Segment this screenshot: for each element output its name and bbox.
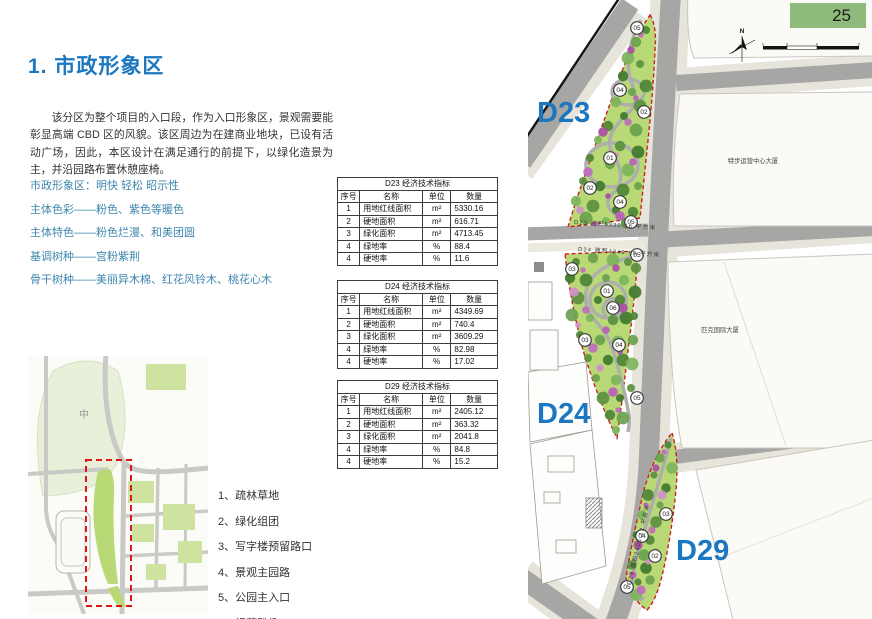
building-label-tebu: 特步运营中心大厦 xyxy=(728,156,779,165)
table-cell: 4 xyxy=(338,253,360,266)
flower-dot xyxy=(624,118,632,126)
table-cell: 1 xyxy=(338,406,360,419)
table-cell: 硬地率 xyxy=(360,456,423,469)
tree-dot xyxy=(627,384,635,392)
flower-dot xyxy=(657,490,666,499)
table-cell: 2 xyxy=(338,318,360,331)
tree-dot xyxy=(640,562,652,574)
table-cell: 用地红线面积 xyxy=(360,406,423,419)
flower-dot xyxy=(661,449,666,454)
tree-dot xyxy=(630,312,638,320)
table-cell: 82.98 xyxy=(451,343,498,356)
tree-dot xyxy=(619,275,629,285)
tree-dot xyxy=(628,88,636,96)
table-cell: 4713.45 xyxy=(451,228,498,241)
tree-dot xyxy=(645,575,654,584)
table-cell: 4 xyxy=(338,456,360,469)
flower-dot xyxy=(648,526,655,533)
locator-center-label: 中 xyxy=(79,408,89,421)
plan-marker: 02 xyxy=(649,550,662,563)
tree-dot xyxy=(608,315,618,325)
tree-dot xyxy=(597,392,610,405)
tree-dot xyxy=(566,309,579,322)
table-title: D23 经济技术指标 xyxy=(338,178,498,191)
table-cell: % xyxy=(423,456,451,469)
building-label-pike: 匹克国际大厦 xyxy=(701,325,739,334)
locator-map: 中 xyxy=(28,356,208,614)
table-cell: 11.6 xyxy=(451,253,498,266)
plan-marker: 04 xyxy=(613,339,626,352)
svg-text:04: 04 xyxy=(615,342,623,349)
table-header-cell: 名称 xyxy=(360,393,423,406)
plan-marker: 03 xyxy=(566,263,579,276)
table-cell: m² xyxy=(423,228,451,241)
flower-dot xyxy=(569,287,579,297)
tree-dot xyxy=(636,60,644,68)
table-header-cell: 数量 xyxy=(451,393,498,406)
tree-dot xyxy=(634,578,641,585)
tree-dot xyxy=(611,375,621,385)
flower-dot xyxy=(583,167,593,177)
table-cell: 硬地面积 xyxy=(360,215,423,228)
table-cell: m² xyxy=(423,406,451,419)
tree-dot xyxy=(605,410,615,420)
table-cell: 88.4 xyxy=(451,240,498,253)
svg-text:03: 03 xyxy=(568,266,576,273)
table-cell: 3 xyxy=(338,228,360,241)
tree-dot xyxy=(617,184,630,197)
table-cell: 硬地面积 xyxy=(360,418,423,431)
tree-dot xyxy=(629,286,642,299)
table-header-cell: 序号 xyxy=(338,293,360,306)
plan-marker: 06 xyxy=(607,302,620,315)
svg-text:05: 05 xyxy=(633,395,641,402)
svg-text:02: 02 xyxy=(640,109,648,116)
table-cell: m² xyxy=(423,215,451,228)
tree-dot xyxy=(656,501,663,508)
svg-text:01: 01 xyxy=(606,155,614,162)
table-cell: 4 xyxy=(338,356,360,369)
table-cell: m² xyxy=(423,418,451,431)
flower-dot xyxy=(605,193,611,199)
table-cell: 1 xyxy=(338,203,360,216)
tree-dot xyxy=(655,453,664,462)
tree-dot xyxy=(592,374,600,382)
svg-text:04: 04 xyxy=(616,199,624,206)
flower-dot xyxy=(636,585,645,594)
table-title: D29 经济技术指标 xyxy=(338,381,498,394)
table-cell: 4 xyxy=(338,443,360,456)
flower-dot xyxy=(580,267,586,273)
tree-dot xyxy=(584,354,592,362)
table-cell: 绿地率 xyxy=(360,240,423,253)
svg-text:02: 02 xyxy=(586,185,594,192)
table-cell: 4 xyxy=(338,343,360,356)
plan-marker: 02 xyxy=(584,182,597,195)
table-title: D24 经济技术指标 xyxy=(338,281,498,294)
table-cell: 84.8 xyxy=(451,443,498,456)
tree-dot xyxy=(603,355,613,365)
flower-dot xyxy=(615,211,625,221)
table-header-cell: 单位 xyxy=(423,293,451,306)
zone-label-d23: D23 xyxy=(537,97,590,129)
svg-text:06: 06 xyxy=(609,305,617,312)
table-cell: 硬地率 xyxy=(360,356,423,369)
tree-dot xyxy=(571,196,581,206)
table-cell: % xyxy=(423,343,451,356)
svg-text:03: 03 xyxy=(662,511,670,518)
table-cell: 15.2 xyxy=(451,456,498,469)
tree-dot xyxy=(617,412,630,425)
table-cell: 3 xyxy=(338,431,360,444)
tree-dot xyxy=(594,136,602,144)
tree-dot xyxy=(586,154,594,162)
tree-dot xyxy=(588,253,598,263)
flower-dot xyxy=(576,206,584,214)
tree-dot xyxy=(630,124,643,137)
svg-text:02: 02 xyxy=(651,553,659,560)
table-cell: % xyxy=(423,240,451,253)
tree-dot xyxy=(612,426,620,434)
tree-dot xyxy=(626,358,639,371)
table-cell: 绿地率 xyxy=(360,343,423,356)
tree-dot xyxy=(622,52,635,65)
table-cell: 硬地率 xyxy=(360,253,423,266)
legend-item: 3、写字楼预留路口 xyxy=(218,538,312,554)
plan-marker: 01 xyxy=(601,285,614,298)
table-header-cell: 数量 xyxy=(451,190,498,203)
flower-dot xyxy=(575,322,581,328)
legend-item: 4、景观主园路 xyxy=(218,564,312,580)
flower-dot xyxy=(633,95,639,101)
plan-marker: 03 xyxy=(579,334,592,347)
table-header-cell: 单位 xyxy=(423,393,451,406)
plan-marker: 04 xyxy=(614,196,627,209)
tree-dot xyxy=(611,97,621,107)
legend-item: 5、公园主入口 xyxy=(218,589,312,605)
tree-dot xyxy=(586,314,594,322)
plan-marker: 01 xyxy=(604,152,617,165)
table-header-cell: 序号 xyxy=(338,393,360,406)
svg-text:N: N xyxy=(740,28,745,35)
table-cell: m² xyxy=(423,331,451,344)
table-cell: m² xyxy=(423,318,451,331)
table-cell: 3 xyxy=(338,331,360,344)
legend-item: 6、绿荫雅趣 xyxy=(218,615,312,619)
svg-text:05: 05 xyxy=(633,25,641,32)
tree-dot xyxy=(624,258,632,266)
spec-table-d23: D23 经济技术指标序号名称单位数量1用地红线面积m²5330.162硬地面积m… xyxy=(337,177,498,266)
spec-table-d29: D29 经济技术指标序号名称单位数量1用地红线面积m²2405.122硬地面积m… xyxy=(337,380,498,469)
tree-dot xyxy=(595,335,605,345)
tree-dot xyxy=(650,516,662,528)
feature-line: 骨干树种——美丽异木棉、红花风铃木、桃花心木 xyxy=(30,271,272,287)
tree-dot xyxy=(628,335,638,345)
table-cell: 硬地面积 xyxy=(360,318,423,331)
tree-dot xyxy=(587,200,600,213)
table-cell: 2 xyxy=(338,215,360,228)
legend-list: 1、疏林草地 2、绿化组团 3、写字楼预留路口 4、景观主园路 5、公园主入口 … xyxy=(218,487,312,619)
page-title: 1. 市政形象区 xyxy=(28,50,164,80)
table-header-cell: 名称 xyxy=(360,190,423,203)
site-plan: 05 04 02 01 02 04 05 05 03 01 06 03 04 0… xyxy=(528,0,872,619)
flower-dot xyxy=(615,407,621,413)
table-cell: m² xyxy=(423,203,451,216)
table-cell: 绿化面积 xyxy=(360,228,423,241)
flower-dot xyxy=(629,158,637,166)
feature-line: 主体特色——粉色烂漫、和美团圆 xyxy=(30,224,272,240)
plan-marker: 05 xyxy=(631,22,644,35)
plan-marker: 05 xyxy=(631,392,644,405)
tree-dot xyxy=(580,274,593,287)
table-cell: 616.71 xyxy=(451,215,498,228)
table-cell: 740.4 xyxy=(451,318,498,331)
zone-label-d29: D29 xyxy=(676,535,729,567)
table-cell: 3609.29 xyxy=(451,331,498,344)
table-header-cell: 序号 xyxy=(338,190,360,203)
table-cell: 用地红线面积 xyxy=(360,306,423,319)
tree-dot xyxy=(620,312,633,325)
tree-dot xyxy=(615,141,625,151)
tree-dot xyxy=(618,71,628,81)
tree-dot xyxy=(631,37,641,47)
zone-label-d24: D24 xyxy=(537,398,590,430)
table-cell: 2041.8 xyxy=(451,431,498,444)
table-cell: 绿化面积 xyxy=(360,331,423,344)
table-cell: 绿地率 xyxy=(360,443,423,456)
table-cell: m² xyxy=(423,306,451,319)
plan-marker: 03 xyxy=(660,508,673,521)
tree-dot xyxy=(640,80,653,93)
document-page: 1. 市政形象区 该分区为整个项目的入口段，作为入口形象区，景观需要能彰显高端 … xyxy=(0,0,872,619)
table-cell: 1 xyxy=(338,306,360,319)
table-cell: m² xyxy=(423,431,451,444)
tree-dot xyxy=(650,471,657,478)
table-cell: 2405.12 xyxy=(451,406,498,419)
table-cell: 用地红线面积 xyxy=(360,203,423,216)
flower-dot xyxy=(627,46,635,54)
legend-item: 1、疏林草地 xyxy=(218,487,312,503)
spec-table-d24: D24 经济技术指标序号名称单位数量1用地红线面积m²4349.692硬地面积m… xyxy=(337,280,498,369)
intro-paragraph: 该分区为整个项目的入口段，作为入口形象区，景观需要能彰显高端 CBD 区的风貌。… xyxy=(30,110,333,180)
page-number-badge: 25 xyxy=(790,3,866,28)
svg-text:01: 01 xyxy=(603,288,611,295)
flower-dot xyxy=(608,387,618,397)
table-header-cell: 数量 xyxy=(451,293,498,306)
feature-line: 市政形象区：明快 轻松 昭示性 xyxy=(30,177,272,193)
feature-line: 主体色彩——粉色、紫色等暖色 xyxy=(30,201,272,217)
flower-dot xyxy=(602,326,610,334)
svg-text:03: 03 xyxy=(581,337,589,344)
flower-dot xyxy=(596,364,604,372)
table-cell: % xyxy=(423,253,451,266)
tree-dot xyxy=(642,489,654,501)
tree-dot xyxy=(664,441,671,448)
feature-list: 市政形象区：明快 轻松 昭示性 主体色彩——粉色、紫色等暖色 主体特色——粉色烂… xyxy=(30,177,272,295)
table-cell: 17.02 xyxy=(451,356,498,369)
table-cell: % xyxy=(423,443,451,456)
table-cell: 5330.16 xyxy=(451,203,498,216)
table-cell: 4349.69 xyxy=(451,306,498,319)
table-header-cell: 单位 xyxy=(423,190,451,203)
tree-dot xyxy=(616,394,624,402)
table-cell: 363.32 xyxy=(451,418,498,431)
feature-line: 基调树种——宫粉紫荆 xyxy=(30,248,272,264)
tree-dot xyxy=(632,146,645,159)
tree-dot xyxy=(602,274,610,282)
table-header-cell: 名称 xyxy=(360,293,423,306)
table-cell: % xyxy=(423,356,451,369)
flower-dot xyxy=(598,127,608,137)
plan-marker: 04 xyxy=(614,84,627,97)
tree-dot xyxy=(666,462,678,474)
tree-dot xyxy=(594,296,602,304)
table-cell: 4 xyxy=(338,240,360,253)
flower-dot xyxy=(652,464,659,471)
plan-marker: 02 xyxy=(638,106,651,119)
table-cell: 2 xyxy=(338,418,360,431)
table-cell: 绿化面积 xyxy=(360,431,423,444)
flower-dot xyxy=(582,306,590,314)
tree-dot xyxy=(631,263,641,273)
tree-dot xyxy=(634,182,642,190)
svg-text:04: 04 xyxy=(616,87,624,94)
legend-item: 2、绿化组团 xyxy=(218,513,312,529)
flower-dot xyxy=(612,264,620,272)
